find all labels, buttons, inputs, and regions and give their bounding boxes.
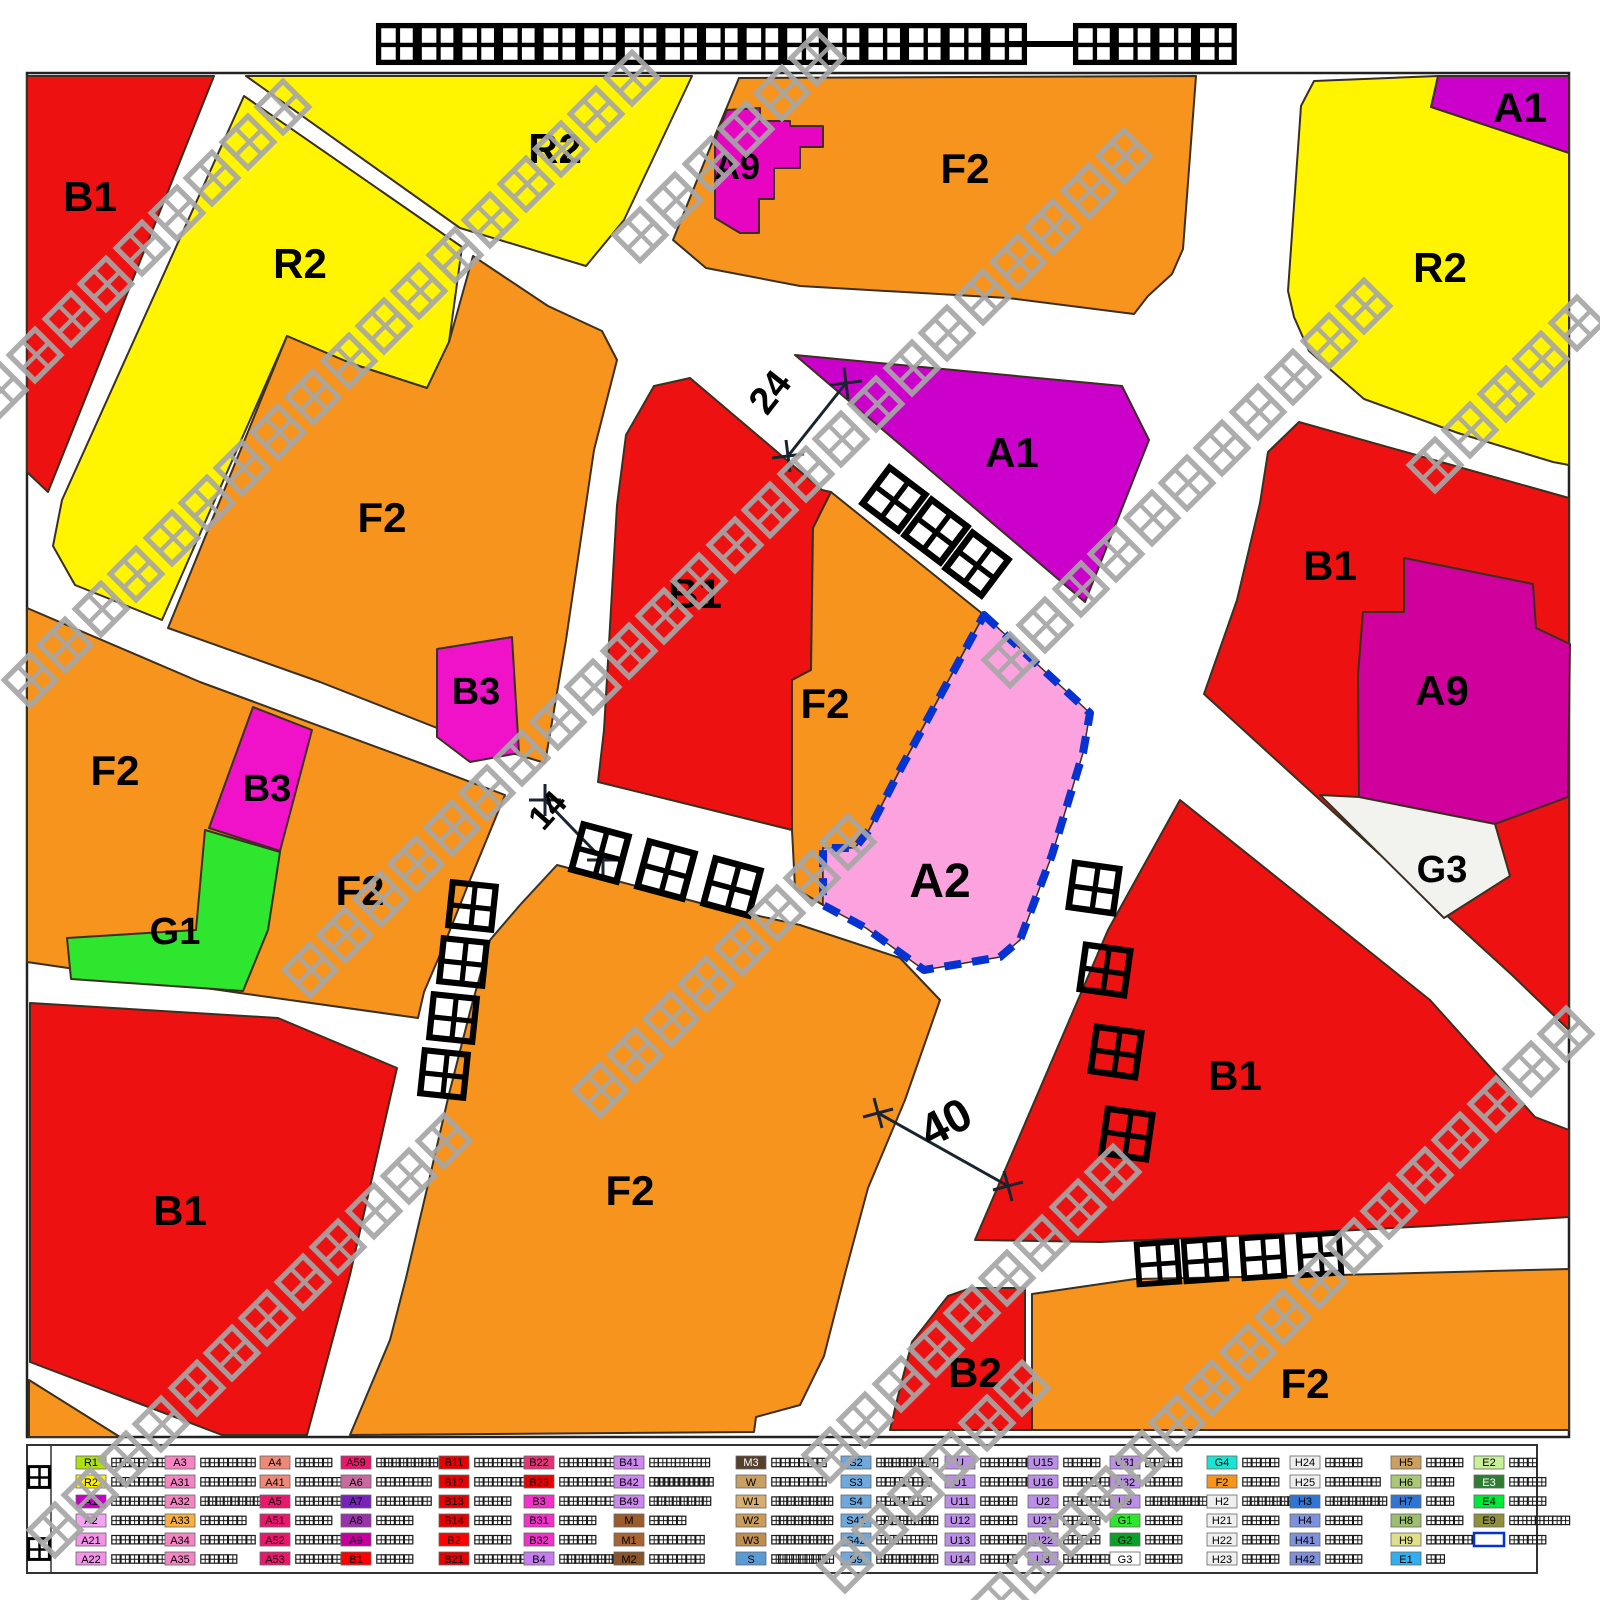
svg-text:E1: E1 xyxy=(1399,1554,1412,1566)
svg-text:A5: A5 xyxy=(268,1496,281,1508)
svg-text:A9: A9 xyxy=(1415,667,1469,714)
svg-text:F2: F2 xyxy=(605,1167,654,1214)
svg-text:B3: B3 xyxy=(243,768,292,810)
svg-text:F2: F2 xyxy=(1216,1477,1229,1489)
svg-text:G3: G3 xyxy=(1118,1554,1133,1566)
svg-text:A52: A52 xyxy=(265,1535,285,1547)
svg-text:G4: G4 xyxy=(1215,1457,1230,1469)
svg-text:S4: S4 xyxy=(849,1496,862,1508)
svg-text:H25: H25 xyxy=(1295,1477,1315,1489)
svg-text:A59: A59 xyxy=(346,1457,366,1469)
svg-text:B4: B4 xyxy=(532,1554,545,1566)
svg-text:U16: U16 xyxy=(1033,1477,1053,1489)
svg-text:G1: G1 xyxy=(150,911,201,953)
svg-text:B21: B21 xyxy=(444,1554,464,1566)
svg-text:A53: A53 xyxy=(265,1554,285,1566)
svg-text:E4: E4 xyxy=(1482,1496,1495,1508)
svg-text:A2: A2 xyxy=(909,855,970,908)
svg-text:G1: G1 xyxy=(1118,1515,1133,1527)
svg-text:H6: H6 xyxy=(1399,1477,1413,1489)
svg-text:G3: G3 xyxy=(1417,849,1468,891)
svg-text:W3: W3 xyxy=(743,1535,760,1547)
svg-text:A4: A4 xyxy=(268,1457,281,1469)
svg-text:B1: B1 xyxy=(153,1187,207,1234)
svg-text:B31: B31 xyxy=(529,1515,549,1527)
svg-text:A34: A34 xyxy=(170,1535,190,1547)
svg-text:H9: H9 xyxy=(1399,1535,1413,1547)
svg-text:F2: F2 xyxy=(940,145,989,192)
svg-text:A6: A6 xyxy=(349,1477,362,1489)
svg-text:R2: R2 xyxy=(1413,244,1467,291)
svg-text:A31: A31 xyxy=(170,1477,190,1489)
svg-text:H8: H8 xyxy=(1399,1515,1413,1527)
svg-text:H5: H5 xyxy=(1399,1457,1413,1469)
svg-text:B13: B13 xyxy=(444,1496,464,1508)
svg-text:A8: A8 xyxy=(349,1515,362,1527)
svg-text:A41: A41 xyxy=(265,1477,285,1489)
svg-text:B1: B1 xyxy=(1208,1052,1262,1099)
svg-text:W1: W1 xyxy=(743,1496,760,1508)
svg-text:U12: U12 xyxy=(950,1515,970,1527)
svg-text:S: S xyxy=(747,1554,754,1566)
svg-text:B22: B22 xyxy=(529,1457,549,1469)
svg-text:B14: B14 xyxy=(444,1515,464,1527)
svg-text:A7: A7 xyxy=(349,1496,362,1508)
svg-text:A35: A35 xyxy=(170,1554,190,1566)
svg-text:E3: E3 xyxy=(1482,1477,1495,1489)
svg-text:B23: B23 xyxy=(529,1477,549,1489)
svg-text:H3: H3 xyxy=(1298,1496,1312,1508)
svg-text:H23: H23 xyxy=(1212,1554,1232,1566)
svg-text:H42: H42 xyxy=(1295,1554,1315,1566)
svg-text:B2: B2 xyxy=(447,1535,460,1547)
svg-text:U15: U15 xyxy=(1033,1457,1053,1469)
svg-text:B12: B12 xyxy=(444,1477,464,1489)
svg-text:E2: E2 xyxy=(1482,1457,1495,1469)
svg-text:A33: A33 xyxy=(170,1515,190,1527)
svg-text:A51: A51 xyxy=(265,1515,285,1527)
svg-text:A32: A32 xyxy=(170,1496,190,1508)
svg-text:H21: H21 xyxy=(1212,1515,1232,1527)
svg-text:H41: H41 xyxy=(1295,1535,1315,1547)
svg-text:A21: A21 xyxy=(81,1535,101,1547)
svg-text:U13: U13 xyxy=(950,1535,970,1547)
svg-text:U11: U11 xyxy=(950,1496,969,1508)
svg-text:E9: E9 xyxy=(1482,1515,1495,1527)
svg-text:H24: H24 xyxy=(1295,1457,1315,1469)
svg-text:F2: F2 xyxy=(90,747,139,794)
svg-text:W2: W2 xyxy=(743,1515,760,1527)
svg-text:F2: F2 xyxy=(800,680,849,727)
svg-text:B11: B11 xyxy=(445,1457,464,1469)
svg-text:R2: R2 xyxy=(273,240,327,287)
svg-text:H7: H7 xyxy=(1399,1496,1413,1508)
svg-text:F2: F2 xyxy=(357,494,406,541)
svg-text:B42: B42 xyxy=(619,1477,639,1489)
svg-text:B1: B1 xyxy=(1303,542,1357,589)
svg-text:S3: S3 xyxy=(849,1477,862,1489)
svg-text:H4: H4 xyxy=(1298,1515,1312,1527)
svg-text:H22: H22 xyxy=(1212,1535,1232,1547)
svg-text:U14: U14 xyxy=(950,1554,970,1566)
svg-text:B3: B3 xyxy=(532,1496,545,1508)
svg-text:W: W xyxy=(746,1477,757,1489)
svg-text:B1: B1 xyxy=(63,173,117,220)
svg-text:B32: B32 xyxy=(529,1535,549,1547)
svg-text:H2: H2 xyxy=(1215,1496,1229,1508)
svg-text:B3: B3 xyxy=(452,671,501,713)
svg-text:M3: M3 xyxy=(743,1457,758,1469)
svg-text:A1: A1 xyxy=(985,429,1039,476)
svg-text:A9: A9 xyxy=(349,1535,362,1547)
svg-text:B1: B1 xyxy=(349,1554,362,1566)
svg-text:M1: M1 xyxy=(621,1535,636,1547)
svg-text:A1: A1 xyxy=(1493,84,1547,131)
svg-text:G2: G2 xyxy=(1118,1535,1133,1547)
svg-text:M2: M2 xyxy=(621,1554,636,1566)
svg-text:B41: B41 xyxy=(619,1457,639,1469)
svg-text:M: M xyxy=(624,1515,633,1527)
svg-text:F2: F2 xyxy=(1280,1360,1329,1407)
svg-text:A3: A3 xyxy=(173,1457,186,1469)
svg-text:B49: B49 xyxy=(619,1496,639,1508)
svg-text:A22: A22 xyxy=(81,1554,101,1566)
svg-text:U2: U2 xyxy=(1036,1496,1050,1508)
